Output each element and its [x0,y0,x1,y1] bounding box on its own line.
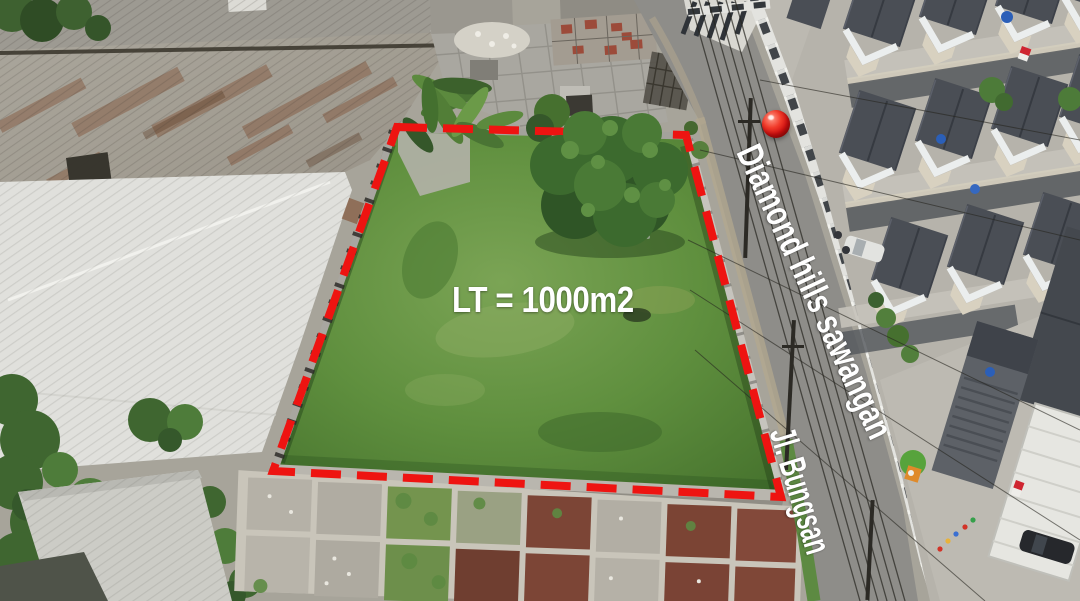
location-pin-icon [762,110,790,138]
rust-patched-roof [550,12,657,65]
area-label: LT = 1000m2 [452,282,634,318]
aerial-land-listing-photo: LT = 1000m2 Diamond hills sawangan Jl. B… [0,0,1080,601]
material-pile [454,22,530,58]
